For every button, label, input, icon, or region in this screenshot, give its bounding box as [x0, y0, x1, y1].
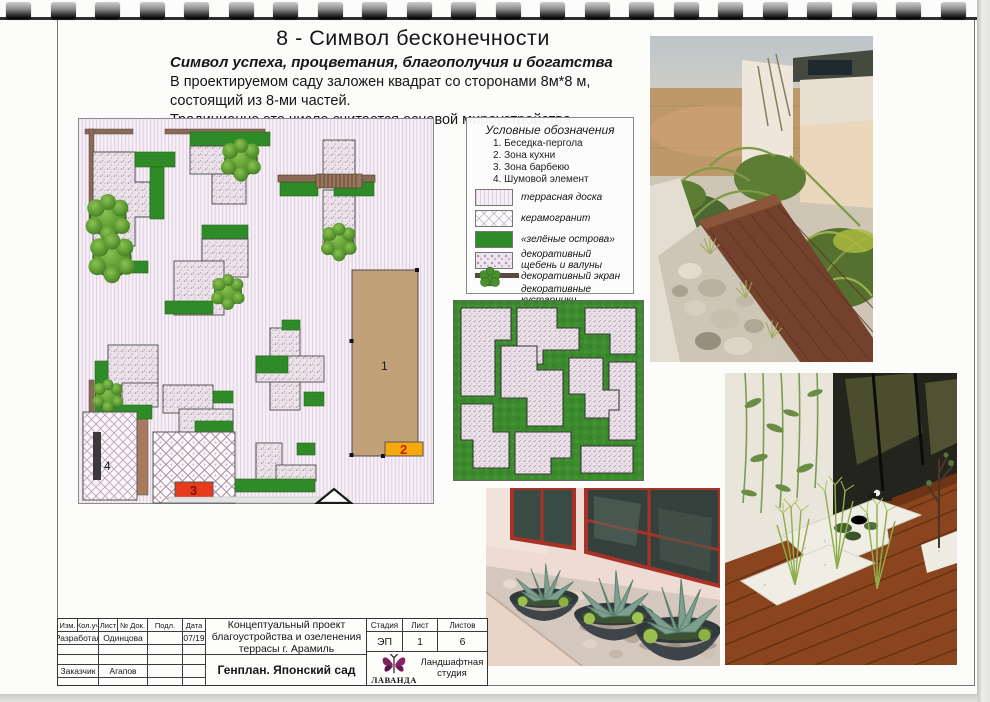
legend-zone-item: 4. Шумовой элемент	[493, 174, 589, 186]
binding-clip	[807, 2, 832, 19]
studio-logo: ЛАВАНДА	[371, 654, 417, 684]
marker-bbq: 3	[190, 483, 197, 498]
description-line: В проектируемом саду заложен квадрат со …	[170, 73, 656, 92]
page-title: 8 - Символ бесконечности	[170, 26, 656, 51]
sheet-number: 1	[403, 632, 437, 651]
legend-material-label: декоративный щебень и валуны	[521, 249, 629, 271]
shrub-icon	[477, 266, 503, 290]
scanned-sheet: { "document": { "title": "8 - Символ бес…	[0, 0, 990, 702]
legend-box: Условные обозначения 1. Беседка-пергола …	[466, 117, 634, 294]
description-line: состоящий из 8-ми частей.	[170, 92, 656, 111]
client-name: Агапов	[99, 665, 147, 677]
legend-zone-item: 3. Зона барбекю	[493, 162, 569, 174]
binding-clip	[184, 2, 209, 19]
legend-material-label: «зелёные острова»	[521, 234, 629, 245]
studio-logo-cell: ЛАВАНДА Ландшафтная студия	[367, 652, 487, 685]
binding-clip	[941, 2, 966, 19]
page-edge-right	[977, 0, 990, 702]
binding-clip	[852, 2, 877, 19]
studio-name: ЛАВАНДА	[371, 676, 417, 684]
studio-caption: Ландшафтная студия	[421, 658, 483, 679]
tb-empty-cell	[58, 655, 98, 664]
tb-empty-cell	[99, 645, 147, 654]
tb-empty-cell	[99, 655, 147, 664]
tb-empty-cell	[58, 678, 98, 685]
tb-col-header: № Док.	[118, 619, 147, 631]
binding-clip	[585, 2, 610, 19]
stage-col-header: Стадия	[367, 619, 402, 631]
tb-empty-cell	[99, 678, 147, 685]
client-label: Заказчик	[58, 665, 98, 677]
photo-deck-walkway	[650, 36, 873, 362]
garden-plan: 4 3 1 2	[78, 118, 434, 504]
binding-clip	[362, 2, 387, 19]
tb-col-header: Лист	[99, 619, 117, 631]
marker-pergola: 1	[381, 359, 388, 373]
legend-material-label: керамогранит	[521, 213, 629, 224]
marker-kitchen: 2	[400, 442, 407, 457]
tb-empty-cell	[148, 632, 182, 644]
tb-empty-cell	[148, 645, 182, 654]
noise-element	[93, 432, 101, 480]
legend-material-label: террасная доска	[521, 192, 629, 203]
title-block-left: Изм. Кол.уч Лист № Док. Подл. Дата Конце…	[57, 618, 368, 686]
tb-empty-cell	[183, 655, 205, 664]
tb-empty-cell	[58, 645, 98, 654]
marker-noise: 4	[104, 459, 111, 473]
title-block-right: Стадия Лист Листов ЭП 1 6 ЛАВАНДА Ландша…	[366, 618, 488, 686]
legend-zone-item: 2. Зона кухни	[493, 150, 555, 162]
photo-deck-papyrus	[725, 373, 957, 665]
sheet-heading: 8 - Символ бесконечности Символ успеха, …	[170, 26, 656, 130]
date-value: 07/19	[183, 632, 205, 644]
photo-agave-bowls	[486, 488, 720, 666]
tb-col-header: Дата	[183, 619, 205, 631]
stage-value: ЭП	[367, 632, 402, 651]
tb-empty-cell	[148, 655, 182, 664]
binding-clip	[6, 2, 31, 19]
binding-clip	[629, 2, 654, 19]
binding-clip	[407, 2, 432, 19]
binding-clip	[763, 2, 788, 19]
scheme-parts	[461, 308, 636, 474]
tb-empty-cell	[183, 678, 205, 685]
binding-clip	[229, 2, 254, 19]
legend-title: Условные обозначения	[467, 123, 633, 137]
page-subtitle: Символ успеха, процветания, благополучия…	[170, 54, 656, 71]
developed-label: Разработал	[58, 632, 98, 644]
tb-col-header: Изм.	[58, 619, 77, 631]
binding-clip	[896, 2, 921, 19]
project-name: Концептуальный проект благоустройства и …	[206, 619, 367, 654]
binding-clip	[273, 2, 298, 19]
binding-clip	[318, 2, 343, 19]
tb-empty-cell	[148, 678, 182, 685]
tb-col-header: Кол.уч	[78, 619, 98, 631]
sheet-col-header: Лист	[403, 619, 437, 631]
binding-clip	[51, 2, 76, 19]
porcelain-area	[83, 412, 137, 500]
swatch-deck-board	[475, 189, 513, 206]
binding-clip	[718, 2, 743, 19]
legend-zone-item: 1. Беседка-пергола	[493, 138, 583, 150]
page-edge-bottom	[0, 694, 978, 702]
eight-part-scheme	[453, 300, 644, 481]
drawing-name: Генплан. Японский сад	[206, 655, 367, 685]
binding-clip	[496, 2, 521, 19]
tb-col-header: Подл.	[148, 619, 182, 631]
butterfly-icon	[380, 654, 408, 676]
spiral-binding	[0, 0, 990, 24]
swatch-green-island	[475, 231, 513, 248]
binding-clip	[95, 2, 120, 19]
developed-by: Одинцова	[99, 632, 147, 644]
tb-empty-cell	[148, 665, 182, 677]
binding-clip	[540, 2, 565, 19]
binding-clip	[140, 2, 165, 19]
sheets-col-header: Листов	[438, 619, 487, 631]
swatch-porcelain	[475, 210, 513, 227]
tb-empty-cell	[183, 665, 205, 677]
sheets-total: 6	[438, 632, 487, 651]
binding-clip	[451, 2, 476, 19]
binding-clip	[674, 2, 699, 19]
tb-empty-cell	[183, 645, 205, 654]
legend-material-label: декоративный экран	[521, 271, 629, 282]
